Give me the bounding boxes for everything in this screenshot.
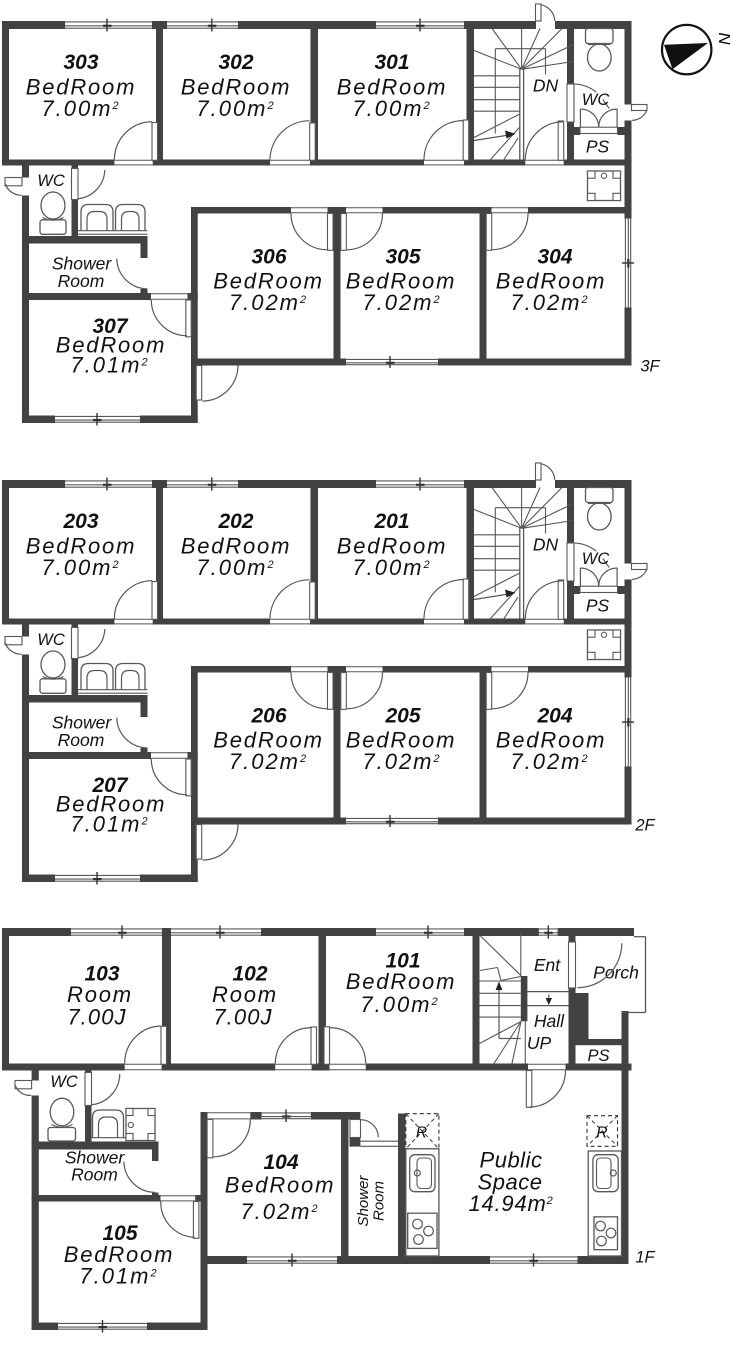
svg-text:7.02m2: 7.02m2 <box>229 290 308 315</box>
svg-text:7.00J: 7.00J <box>213 1005 272 1030</box>
svg-text:Room: Room <box>212 982 278 1007</box>
svg-text:UP: UP <box>527 1033 552 1053</box>
svg-text:7.00m2: 7.00m2 <box>352 96 431 121</box>
svg-text:DN: DN <box>533 535 559 555</box>
svg-text:BedRoom: BedRoom <box>225 1173 335 1198</box>
svg-text:206: 206 <box>250 705 286 728</box>
svg-text:2F: 2F <box>634 817 655 835</box>
svg-text:304: 304 <box>537 246 572 269</box>
svg-text:R: R <box>596 1125 607 1142</box>
svg-text:WC: WC <box>582 550 610 568</box>
svg-text:7.01m2: 7.01m2 <box>70 812 149 837</box>
svg-text:7.00m2: 7.00m2 <box>360 992 439 1017</box>
svg-text:Hall: Hall <box>534 1011 565 1031</box>
svg-text:301: 301 <box>374 51 409 74</box>
svg-text:303: 303 <box>63 51 98 74</box>
svg-text:7.02m2: 7.02m2 <box>362 290 441 315</box>
svg-text:PS: PS <box>586 137 610 157</box>
svg-text:203: 203 <box>62 510 98 533</box>
svg-text:14.94m2: 14.94m2 <box>468 1191 553 1216</box>
svg-text:7.02m2: 7.02m2 <box>362 749 441 774</box>
svg-text:7.01m2: 7.01m2 <box>79 1264 158 1289</box>
svg-text:R: R <box>416 1125 427 1142</box>
svg-text:Room: Room <box>371 1181 388 1221</box>
svg-text:7.02m2: 7.02m2 <box>240 1199 319 1224</box>
svg-text:WC: WC <box>37 172 65 190</box>
svg-text:Shower: Shower <box>355 1175 372 1227</box>
svg-text:7.00m2: 7.00m2 <box>41 96 120 121</box>
svg-text:7.00m2: 7.00m2 <box>352 555 431 580</box>
svg-text:WC: WC <box>582 91 610 109</box>
svg-text:202: 202 <box>217 510 253 533</box>
svg-text:7.00m2: 7.00m2 <box>41 555 120 580</box>
svg-text:7.00m2: 7.00m2 <box>196 96 275 121</box>
svg-text:7.02m2: 7.02m2 <box>229 749 308 774</box>
svg-text:WC: WC <box>50 1073 78 1091</box>
svg-text:PS: PS <box>587 1047 609 1065</box>
svg-text:N: N <box>715 32 730 45</box>
svg-text:BedRoom: BedRoom <box>346 969 456 994</box>
svg-text:Room: Room <box>71 1165 118 1185</box>
svg-text:1F: 1F <box>635 1249 655 1267</box>
svg-text:Room: Room <box>58 730 105 750</box>
svg-text:7.02m2: 7.02m2 <box>510 749 589 774</box>
svg-text:Room: Room <box>67 982 133 1007</box>
svg-text:WC: WC <box>37 631 65 649</box>
svg-text:205: 205 <box>384 705 420 728</box>
svg-text:305: 305 <box>385 246 420 269</box>
svg-text:DN: DN <box>533 76 559 96</box>
svg-text:Ent: Ent <box>534 955 561 975</box>
svg-text:204: 204 <box>536 705 572 728</box>
svg-text:7.02m2: 7.02m2 <box>510 290 589 315</box>
svg-text:306: 306 <box>251 246 286 269</box>
svg-text:7.01m2: 7.01m2 <box>70 353 149 378</box>
svg-text:3F: 3F <box>640 358 660 376</box>
svg-text:104: 104 <box>263 1151 298 1174</box>
svg-text:7.00m2: 7.00m2 <box>196 555 275 580</box>
svg-text:7.00J: 7.00J <box>67 1005 126 1030</box>
svg-text:201: 201 <box>373 510 409 533</box>
svg-text:Room: Room <box>58 271 105 291</box>
svg-text:PS: PS <box>586 596 610 616</box>
svg-text:302: 302 <box>218 51 253 74</box>
